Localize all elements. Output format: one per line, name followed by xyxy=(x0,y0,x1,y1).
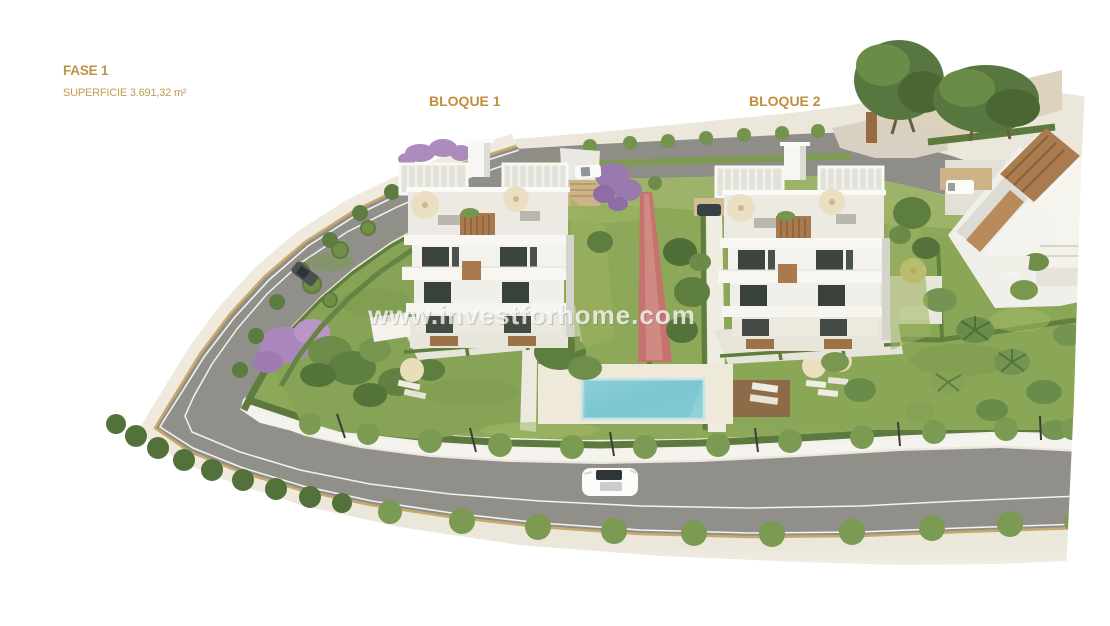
svg-text:BLOQUE 1: BLOQUE 1 xyxy=(429,93,501,109)
svg-text:BLOQUE 2: BLOQUE 2 xyxy=(749,93,821,109)
svg-text:SUPERFICIE 3.691,32 m²: SUPERFICIE 3.691,32 m² xyxy=(63,87,187,99)
svg-text:FASE 1: FASE 1 xyxy=(63,63,109,78)
svg-text:www.investforhome.com: www.investforhome.com xyxy=(367,300,696,330)
